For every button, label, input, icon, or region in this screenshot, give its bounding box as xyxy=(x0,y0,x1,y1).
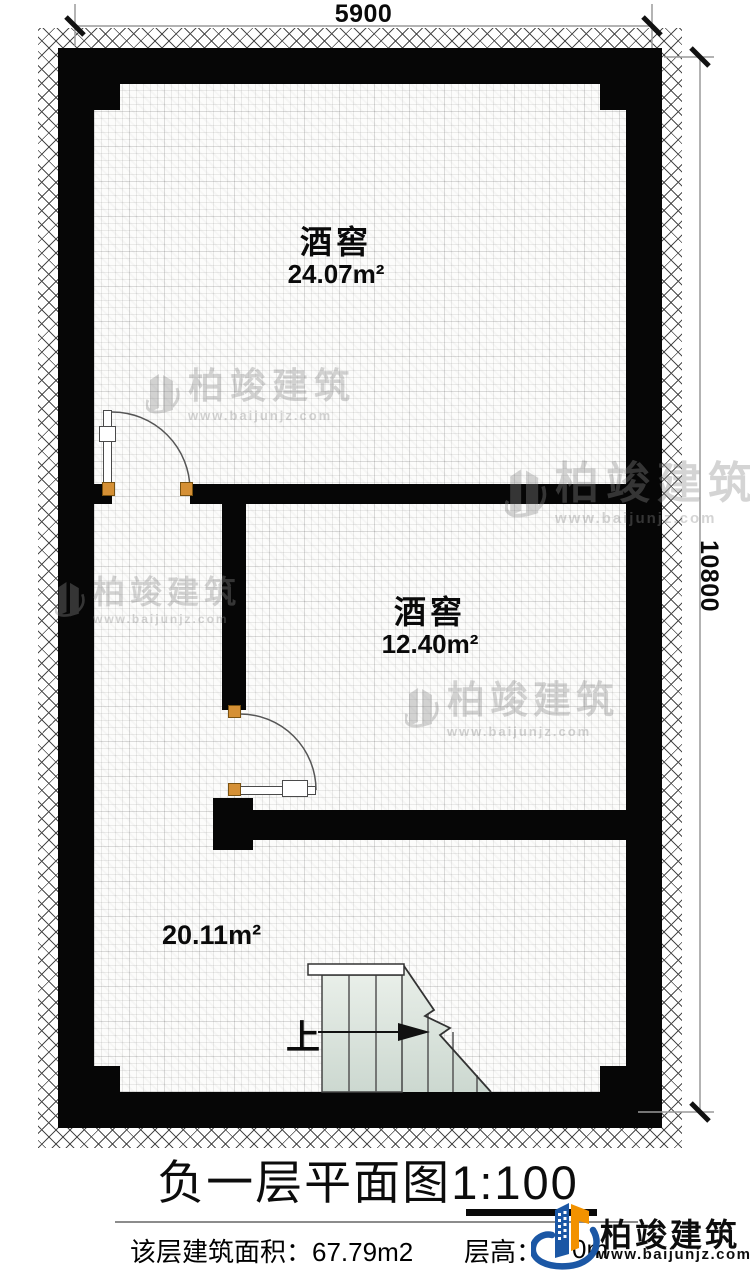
door-1-latch-frame xyxy=(180,482,193,496)
watermark: 柏竣建筑 www.baijunjz.com xyxy=(505,462,750,527)
watermark-logo-icon xyxy=(405,682,439,728)
plan-title-name: 负一层平面图 xyxy=(157,1156,451,1209)
watermark-website: www.baijunjz.com xyxy=(555,510,750,527)
floor-area-label: 该层建筑面积： xyxy=(130,1237,312,1267)
wall-pier xyxy=(213,798,253,850)
pilaster-bottom-right xyxy=(600,1066,626,1092)
watermark-website: www.baijunjz.com xyxy=(188,408,356,423)
watermark-logo-icon xyxy=(55,576,85,618)
watermark-company: 柏竣建筑 xyxy=(188,368,356,404)
room-2-label: 酒窖 12.40m² xyxy=(382,596,479,658)
watermark-website: www.baijunjz.com xyxy=(447,724,619,739)
watermark: 柏竣建筑 www.baijunjz.com xyxy=(55,576,241,626)
door-2-hinge-frame xyxy=(228,783,241,796)
room-2-area: 12.40m² xyxy=(382,630,479,659)
floor-plan: 酒窖 24.07m² 酒窖 12.40m² 20.11m² 上 5900 108… xyxy=(0,0,750,1276)
plan-title: 负一层平面图1:100 xyxy=(157,1144,579,1213)
lower-interior-wall xyxy=(253,810,626,840)
room-2-name: 酒窖 xyxy=(382,596,479,630)
stairs-up-label: 上 xyxy=(286,1010,320,1059)
door-2-handle xyxy=(282,780,308,797)
watermark-logo-icon xyxy=(505,462,547,518)
door-1-leaf xyxy=(103,410,112,486)
watermark: 柏竣建筑 www.baijunjz.com xyxy=(405,682,619,739)
door-2-jamb-frame xyxy=(228,705,241,718)
dimension-top-value: 5900 xyxy=(75,0,652,29)
watermark: 柏竣建筑 www.baijunjz.com xyxy=(146,368,356,423)
watermark-company: 柏竣建筑 xyxy=(555,462,750,506)
watermark-company: 柏竣建筑 xyxy=(93,576,241,608)
dimension-right-value: 10800 xyxy=(694,540,723,612)
brand-website: www.baijunjz.com xyxy=(598,1246,750,1263)
door-1-hinge-frame xyxy=(102,482,115,496)
door-1-handle xyxy=(99,426,116,442)
floor-area-info: 该层建筑面积：67.79m2 xyxy=(130,1232,413,1269)
pilaster-top-left xyxy=(94,84,120,110)
watermark-logo-icon xyxy=(146,368,180,414)
watermark-company: 柏竣建筑 xyxy=(447,682,619,720)
brand-logo-icon xyxy=(531,1196,603,1274)
pilaster-top-right xyxy=(600,84,626,110)
watermark-website: www.baijunjz.com xyxy=(93,612,241,626)
room-1-label: 酒窖 24.07m² xyxy=(288,226,385,288)
room-1-name: 酒窖 xyxy=(288,226,385,260)
room-1-area: 24.07m² xyxy=(288,260,385,289)
room-3-area: 20.11m² xyxy=(162,920,261,951)
pilaster-bottom-left xyxy=(94,1066,120,1092)
floor-area-value: 67.79m2 xyxy=(312,1237,413,1267)
